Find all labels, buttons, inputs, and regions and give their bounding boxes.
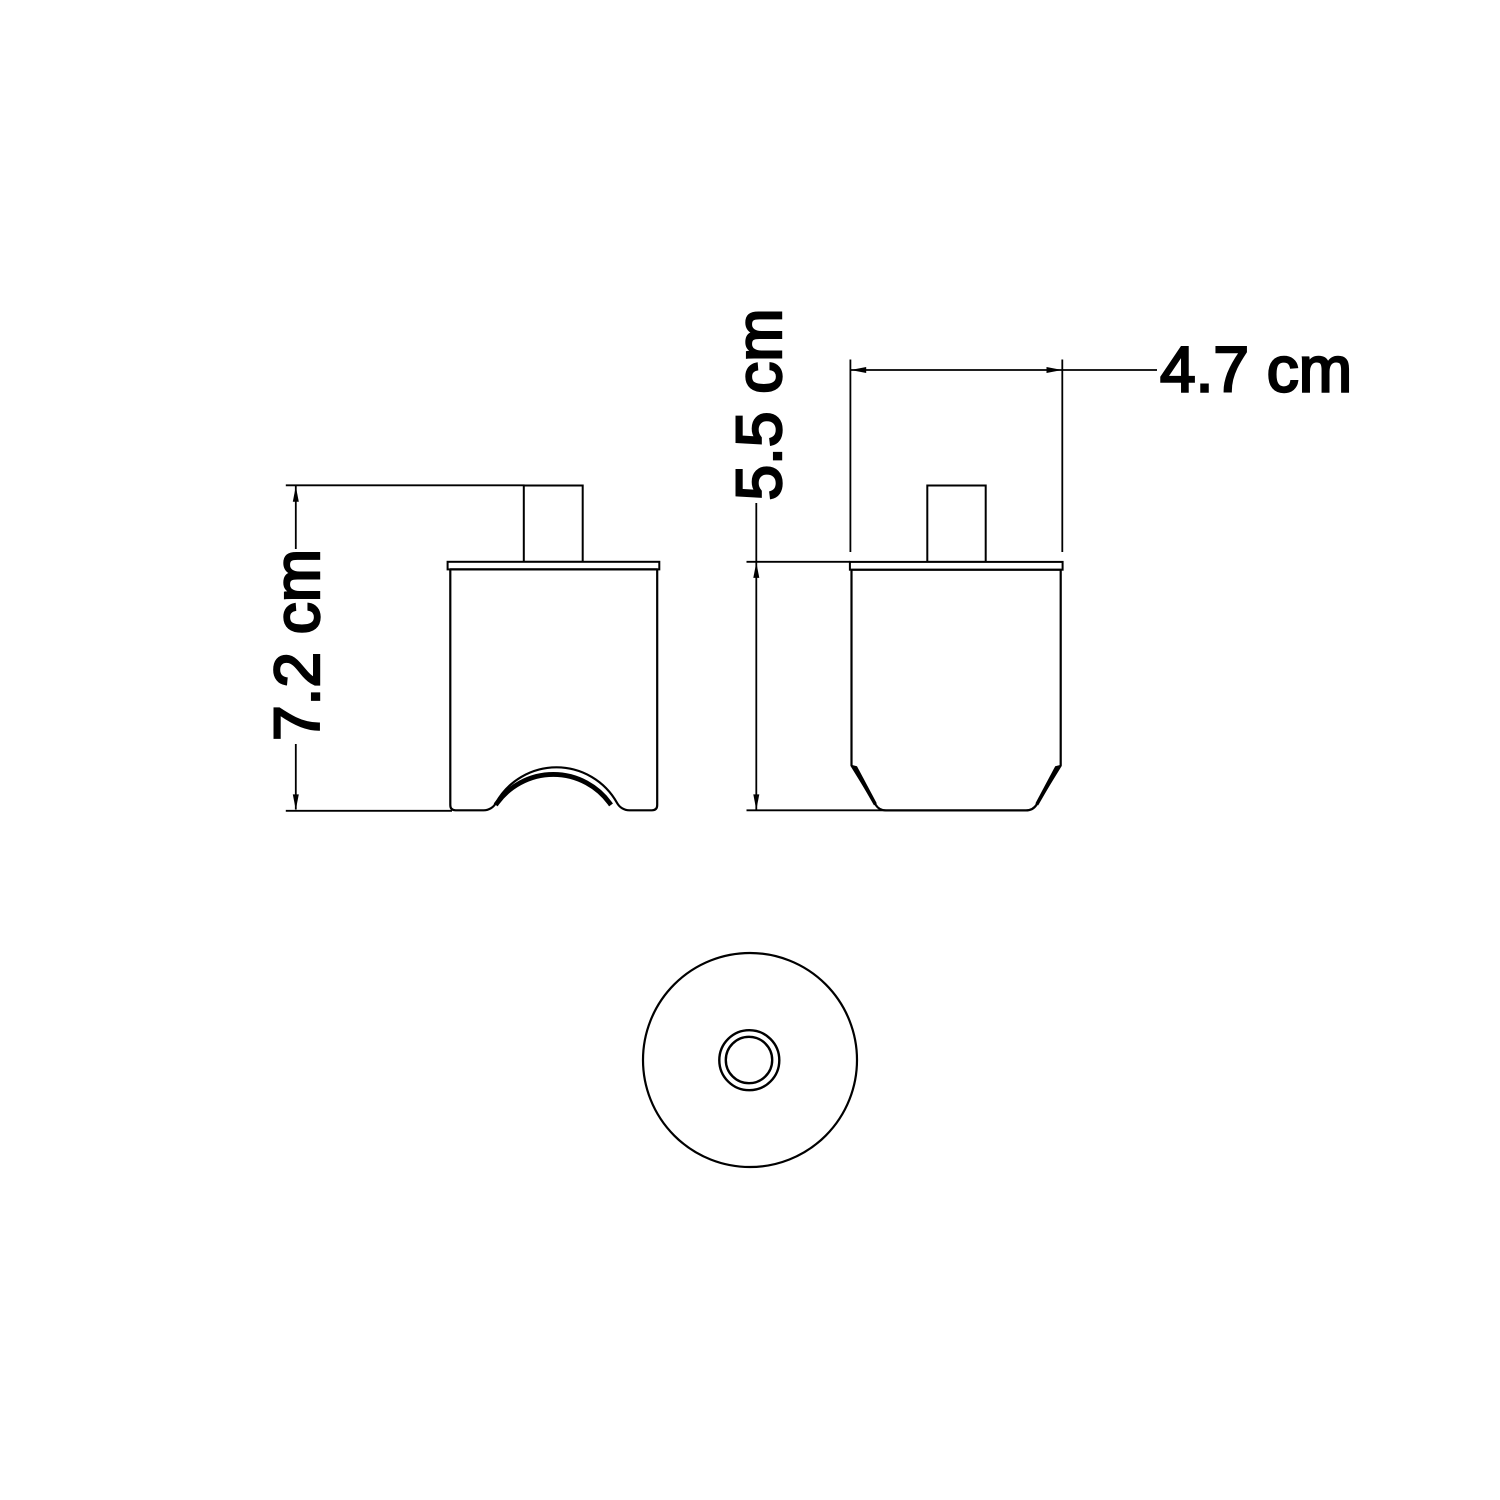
svg-text:4.7 cm: 4.7 cm [1160,334,1352,406]
svg-text:5.5 cm: 5.5 cm [723,308,795,500]
svg-text:7.2 cm: 7.2 cm [261,549,333,741]
